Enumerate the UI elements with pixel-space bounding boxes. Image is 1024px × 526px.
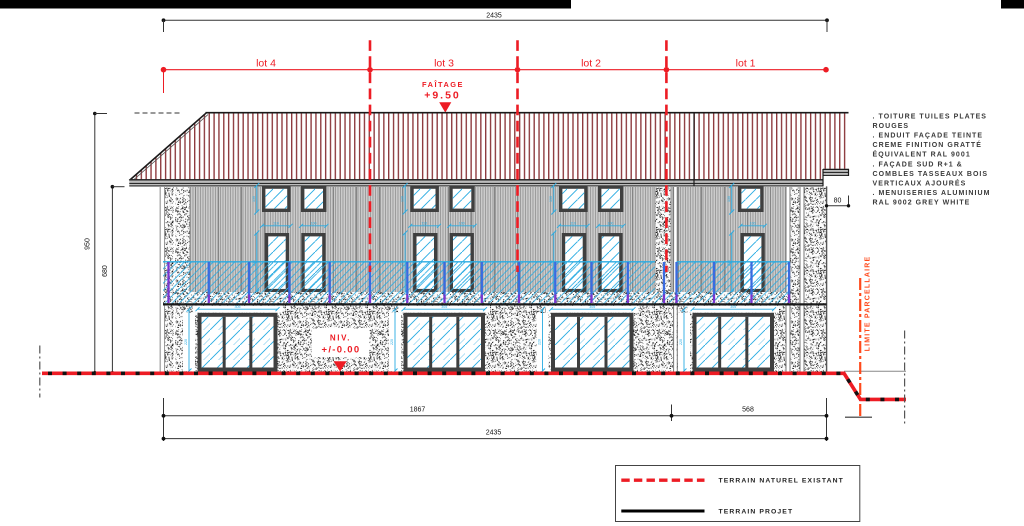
svg-text:568: 568 [742, 406, 754, 413]
svg-text:lot 1: lot 1 [736, 58, 756, 70]
svg-text:100: 100 [311, 221, 317, 225]
svg-text:305: 305 [730, 305, 736, 309]
svg-text:LIMITE PARCELLAIRE: LIMITE PARCELLAIRE [864, 256, 871, 352]
svg-text:110: 110 [421, 221, 427, 225]
svg-text:680: 680 [102, 265, 109, 277]
svg-text:NIV.: NIV. [330, 334, 351, 343]
svg-text:130: 130 [549, 196, 553, 202]
svg-text:130: 130 [727, 196, 731, 202]
svg-text:. TOITURE TUILES PLATES: . TOITURE TUILES PLATES [873, 113, 988, 120]
svg-text:220: 220 [679, 339, 683, 345]
svg-text:. ENDUIT FAÇADE TEINTE: . ENDUIT FAÇADE TEINTE [873, 133, 984, 140]
svg-text:RAL 9002 GREY WHITE: RAL 9002 GREY WHITE [873, 200, 971, 207]
svg-text:100: 100 [750, 221, 756, 225]
svg-text:FAÎTAGE: FAÎTAGE [422, 80, 464, 89]
svg-text:TERRAIN NATUREL EXISTANT: TERRAIN NATUREL EXISTANT [719, 478, 844, 485]
svg-text:220: 220 [390, 339, 394, 345]
svg-text:80: 80 [834, 197, 842, 204]
svg-text:TERRAIN PROJET: TERRAIN PROJET [719, 508, 794, 515]
svg-text:950: 950 [85, 238, 92, 250]
svg-text:220: 220 [538, 339, 542, 345]
svg-text:+9.50: +9.50 [424, 90, 461, 102]
svg-text:2435: 2435 [486, 13, 502, 20]
svg-text:220: 220 [184, 339, 188, 345]
svg-text:130: 130 [401, 196, 405, 202]
svg-text:VERTICAUX AJOURÉS: VERTICAUX AJOURÉS [873, 179, 967, 188]
svg-text:130: 130 [252, 196, 256, 202]
svg-text:. MENUISERIES ALUMINIUM: . MENUISERIES ALUMINIUM [873, 190, 991, 197]
svg-text:ÉQUIVALENT RAL 9001: ÉQUIVALENT RAL 9001 [873, 150, 971, 159]
svg-text:110: 110 [570, 221, 576, 225]
svg-text:305: 305 [235, 305, 241, 309]
svg-text:100: 100 [459, 221, 465, 225]
svg-text:1867: 1867 [410, 406, 426, 413]
svg-text:ROUGES: ROUGES [873, 123, 910, 130]
svg-text:305: 305 [589, 305, 595, 309]
svg-text:+/-0.00: +/-0.00 [322, 345, 361, 356]
svg-text:lot 4: lot 4 [256, 58, 276, 70]
svg-text:CREME FINITION GRATTÉ: CREME FINITION GRATTÉ [873, 140, 982, 149]
svg-text:305: 305 [441, 305, 447, 309]
svg-text:100: 100 [608, 221, 614, 225]
svg-text:lot 3: lot 3 [434, 58, 454, 70]
svg-text:110: 110 [273, 221, 279, 225]
svg-text:2435: 2435 [486, 429, 502, 436]
svg-text:. FAÇADE SUD R+1 &: . FAÇADE SUD R+1 & [873, 161, 963, 168]
svg-text:COMBLES TASSEAUX BOIS: COMBLES TASSEAUX BOIS [873, 171, 989, 178]
svg-text:lot 2: lot 2 [581, 58, 601, 70]
